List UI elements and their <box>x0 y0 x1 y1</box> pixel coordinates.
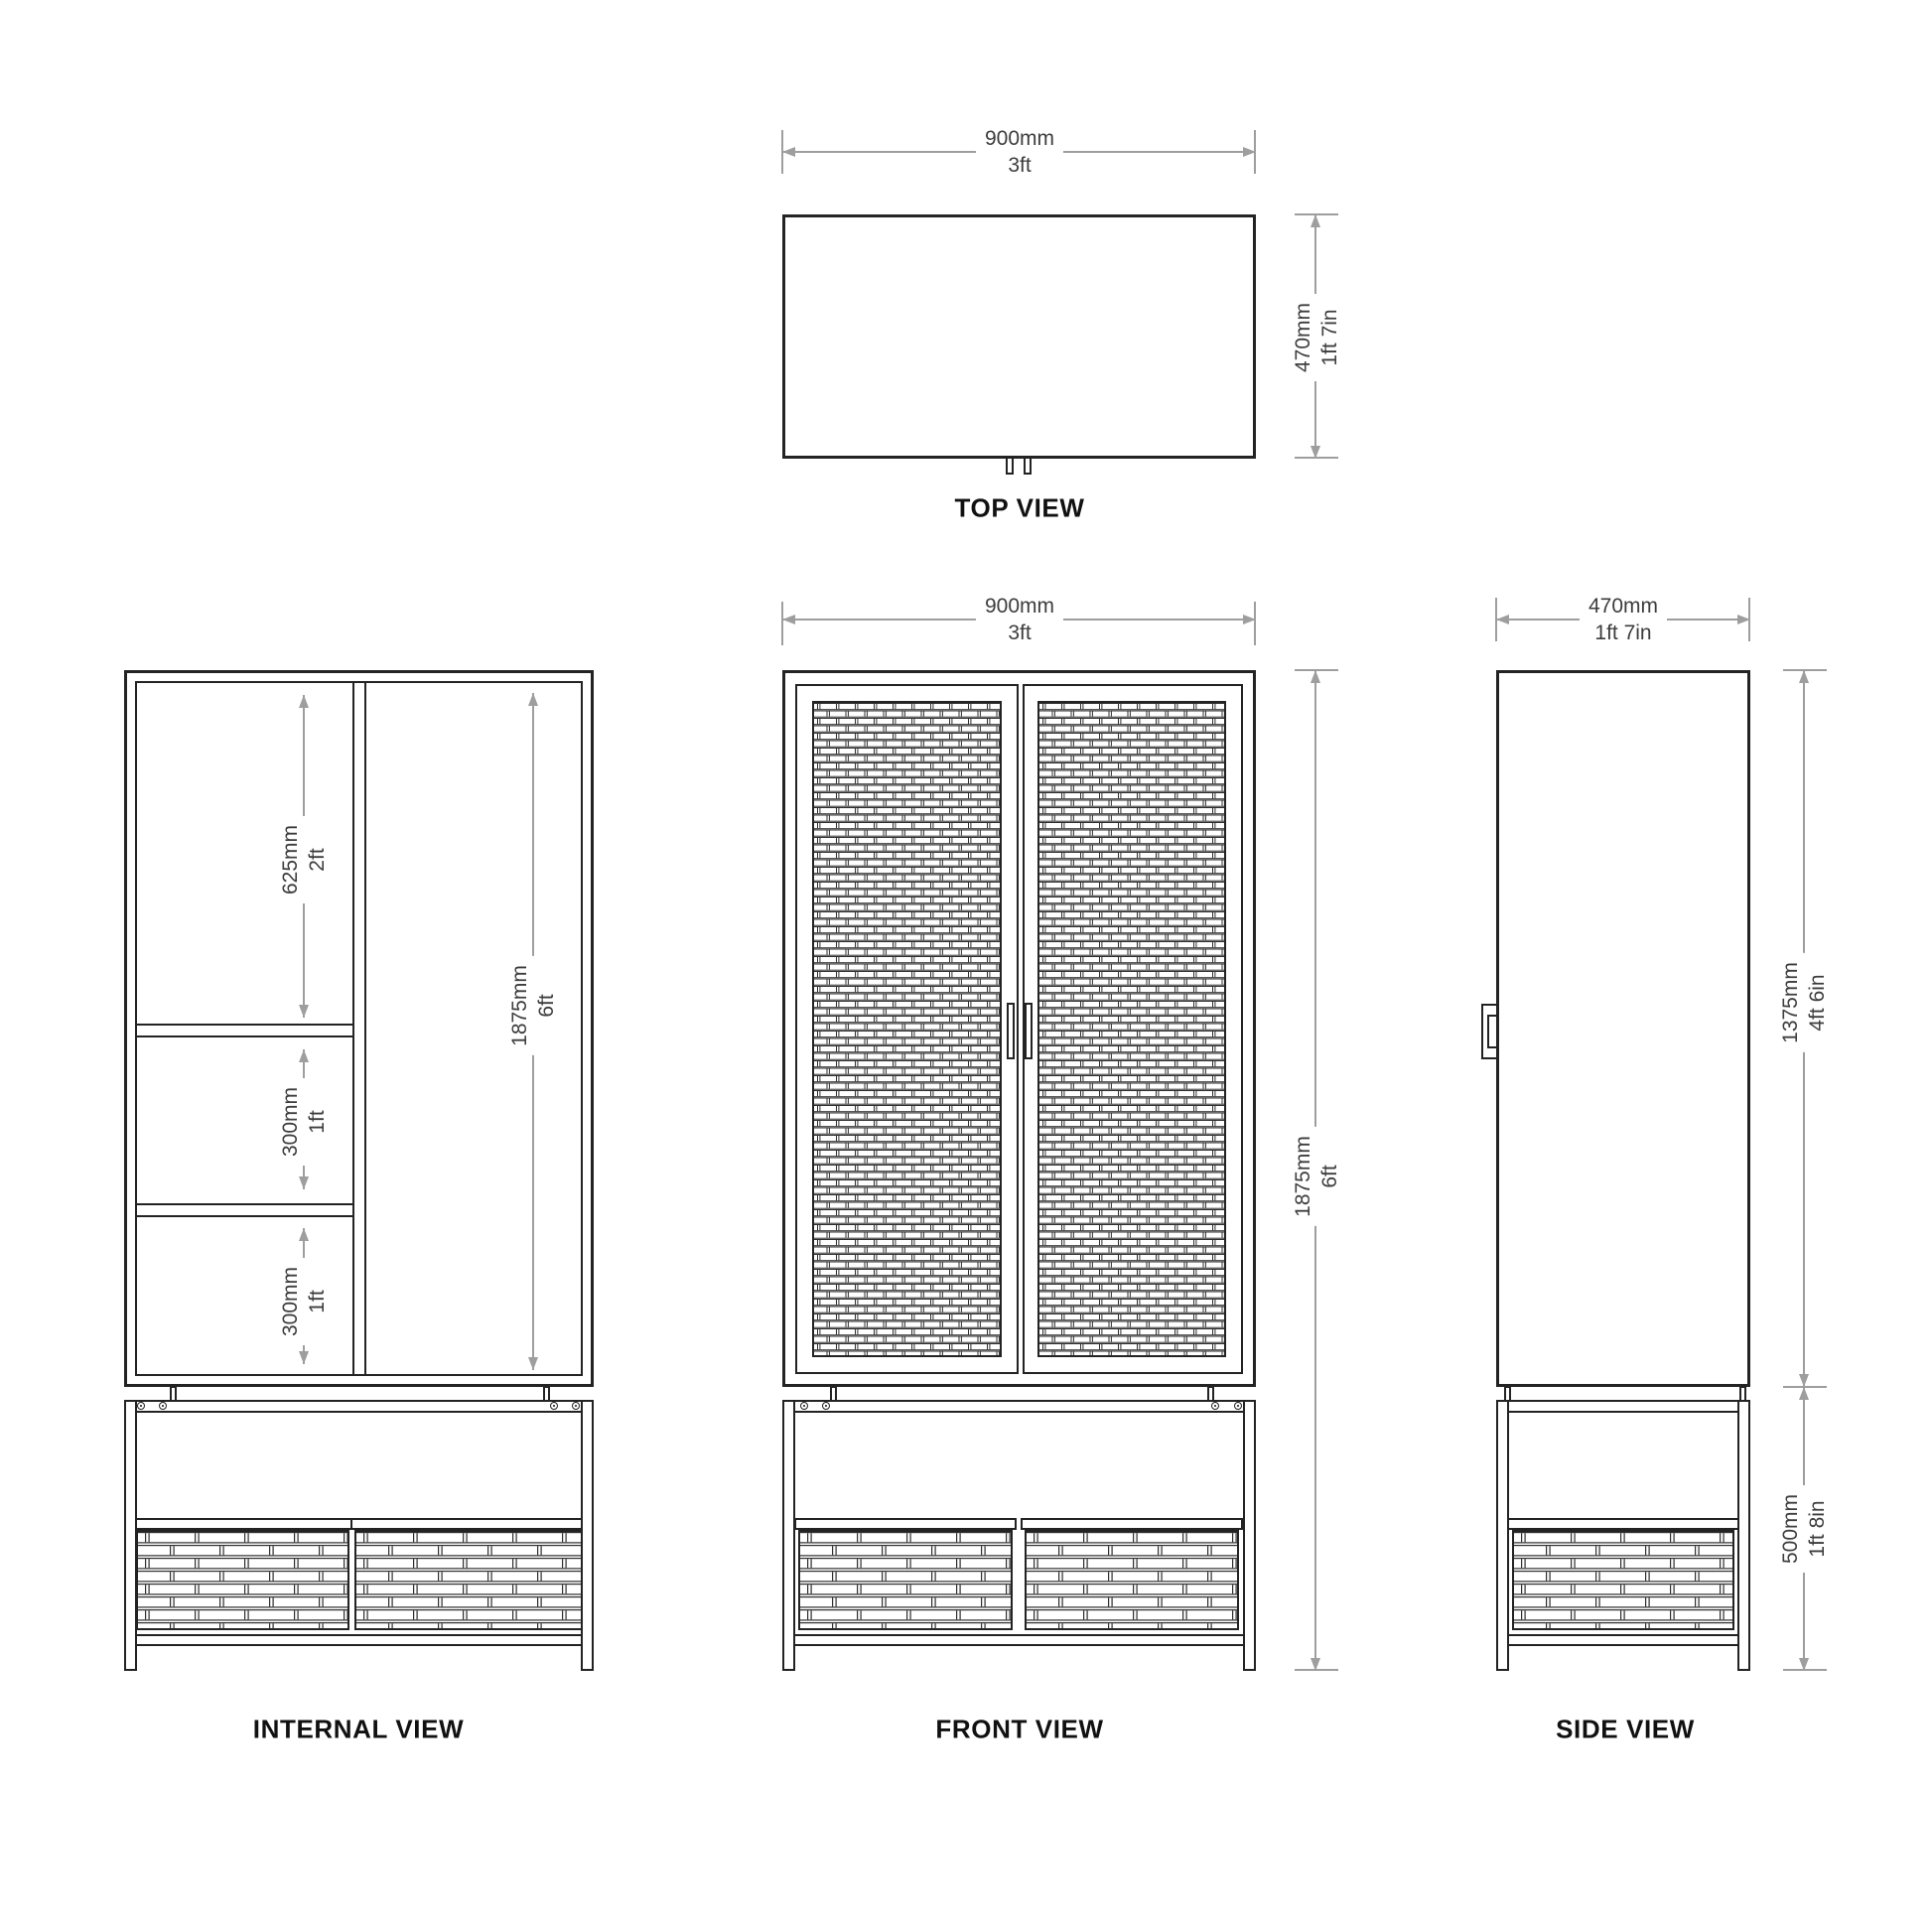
basket-rail <box>350 1518 587 1530</box>
left-door-cane-panel <box>812 701 1002 1357</box>
arrowhead-down <box>299 1176 309 1189</box>
leg <box>1737 1400 1750 1671</box>
top-view-caption: TOP VIEW <box>955 493 1085 524</box>
arrowhead-up <box>1311 670 1320 683</box>
dim-internal-top-compartment: 625mm 2ft <box>274 816 334 903</box>
arrowhead-up <box>299 695 309 708</box>
leg <box>1496 1400 1509 1671</box>
dim-value-imperial: 4ft 6in <box>1804 962 1831 1043</box>
screw-icon <box>1211 1402 1219 1410</box>
dim-value-imperial: 3ft <box>985 152 1054 179</box>
dim-internal-bottom-compartment: 300mm 1ft <box>274 1258 334 1345</box>
arrowhead-left <box>782 147 795 157</box>
screw-icon <box>822 1402 830 1410</box>
base-stretcher <box>1496 1634 1750 1646</box>
internal-shelf <box>137 1024 352 1037</box>
screw-icon <box>159 1402 167 1410</box>
dim-value-imperial: 1ft 7in <box>1588 620 1658 646</box>
dim-value-metric: 625mm <box>277 825 304 895</box>
top-view-outline <box>782 214 1256 459</box>
arrowhead-down <box>1311 446 1320 459</box>
leg <box>1243 1400 1256 1671</box>
dim-top-width: 900mm 3ft <box>976 122 1063 182</box>
dim-side-body-height: 1375mm 4ft 6in <box>1774 953 1834 1052</box>
cane-basket-panel <box>798 1530 1013 1630</box>
arrowhead-right <box>1737 615 1750 624</box>
basket-rail <box>132 1518 354 1530</box>
side-door-handle-inner <box>1487 1015 1498 1048</box>
cane-basket-panel <box>136 1530 349 1630</box>
dim-internal-middle-compartment: 300mm 1ft <box>274 1078 334 1166</box>
screw-icon <box>800 1402 808 1410</box>
cane-basket-panel <box>1025 1530 1239 1630</box>
arrowhead-down <box>528 1357 538 1370</box>
dim-internal-full-height: 1875mm 6ft <box>503 956 563 1055</box>
dim-value-imperial: 6ft <box>1316 1136 1343 1217</box>
dim-side-base-height: 500mm 1ft 8in <box>1774 1485 1834 1573</box>
cane-basket-panel <box>1512 1530 1734 1630</box>
front-view-caption: FRONT VIEW <box>935 1715 1103 1745</box>
dim-value-metric: 300mm <box>277 1087 304 1157</box>
dim-value-imperial: 2ft <box>304 825 331 895</box>
dim-value-metric: 470mm <box>1290 303 1316 372</box>
dim-side-width: 470mm 1ft 7in <box>1580 590 1667 649</box>
top-view-handle-tab <box>1024 457 1032 475</box>
internal-vertical-divider <box>352 683 366 1374</box>
arrowhead-up <box>1799 670 1809 683</box>
basket-rail <box>1507 1518 1739 1530</box>
extension-tick <box>1783 1669 1827 1671</box>
dim-value-imperial: 1ft 7in <box>1316 303 1343 372</box>
dim-value-metric: 1875mm <box>1290 1136 1316 1217</box>
leg <box>782 1400 795 1671</box>
dim-value-imperial: 1ft <box>304 1267 331 1336</box>
internal-shelf <box>137 1203 352 1217</box>
door-handle <box>1025 1003 1033 1059</box>
arrowhead-up <box>299 1049 309 1062</box>
base-stretcher <box>124 1634 594 1646</box>
leg <box>581 1400 594 1671</box>
arrowhead-down <box>299 1005 309 1018</box>
arrowhead-down <box>1311 1658 1320 1671</box>
arrowhead-up <box>299 1228 309 1241</box>
dim-value-metric: 1875mm <box>506 965 533 1046</box>
dim-front-height: 1875mm 6ft <box>1287 1127 1346 1226</box>
dim-value-metric: 900mm <box>985 593 1054 620</box>
screw-icon <box>137 1402 145 1410</box>
basket-rail <box>1021 1518 1243 1530</box>
cane-basket-panel <box>354 1530 583 1630</box>
arrowhead-left <box>1496 615 1509 624</box>
door-handle <box>1007 1003 1015 1059</box>
dim-value-metric: 900mm <box>985 125 1054 152</box>
dim-value-metric: 470mm <box>1588 593 1658 620</box>
screw-icon <box>572 1402 580 1410</box>
dim-value-imperial: 3ft <box>985 620 1054 646</box>
right-door-cane-panel <box>1037 701 1226 1357</box>
arrowhead-up <box>1799 1387 1809 1400</box>
arrowhead-up <box>528 693 538 706</box>
internal-view-caption: INTERNAL VIEW <box>253 1715 464 1745</box>
dim-value-imperial: 1ft <box>304 1087 331 1157</box>
base-top-rail <box>124 1400 594 1413</box>
side-view-caption: SIDE VIEW <box>1556 1715 1695 1745</box>
technical-drawing-canvas: 900mm 3ft 470mm 1ft 7in TOP VIEW 625mm 2… <box>0 0 1932 1932</box>
top-view-handle-tab <box>1006 457 1014 475</box>
dim-value-metric: 1375mm <box>1777 962 1804 1043</box>
dim-value-metric: 300mm <box>277 1267 304 1336</box>
dim-value-metric: 500mm <box>1777 1494 1804 1564</box>
leg <box>124 1400 137 1671</box>
screw-icon <box>1234 1402 1242 1410</box>
base-top-rail <box>782 1400 1256 1413</box>
arrowhead-down <box>299 1351 309 1364</box>
dim-front-width: 900mm 3ft <box>976 590 1063 649</box>
arrowhead-up <box>1311 214 1320 227</box>
arrowhead-right <box>1243 615 1256 624</box>
dim-top-depth: 470mm 1ft 7in <box>1287 294 1346 381</box>
arrowhead-right <box>1243 147 1256 157</box>
basket-rail <box>794 1518 1017 1530</box>
base-top-rail <box>1496 1400 1750 1413</box>
screw-icon <box>550 1402 558 1410</box>
side-body-outline <box>1496 670 1750 1387</box>
arrowhead-left <box>782 615 795 624</box>
dim-value-imperial: 6ft <box>533 965 560 1046</box>
base-stretcher <box>782 1634 1256 1646</box>
dim-value-imperial: 1ft 8in <box>1804 1494 1831 1564</box>
